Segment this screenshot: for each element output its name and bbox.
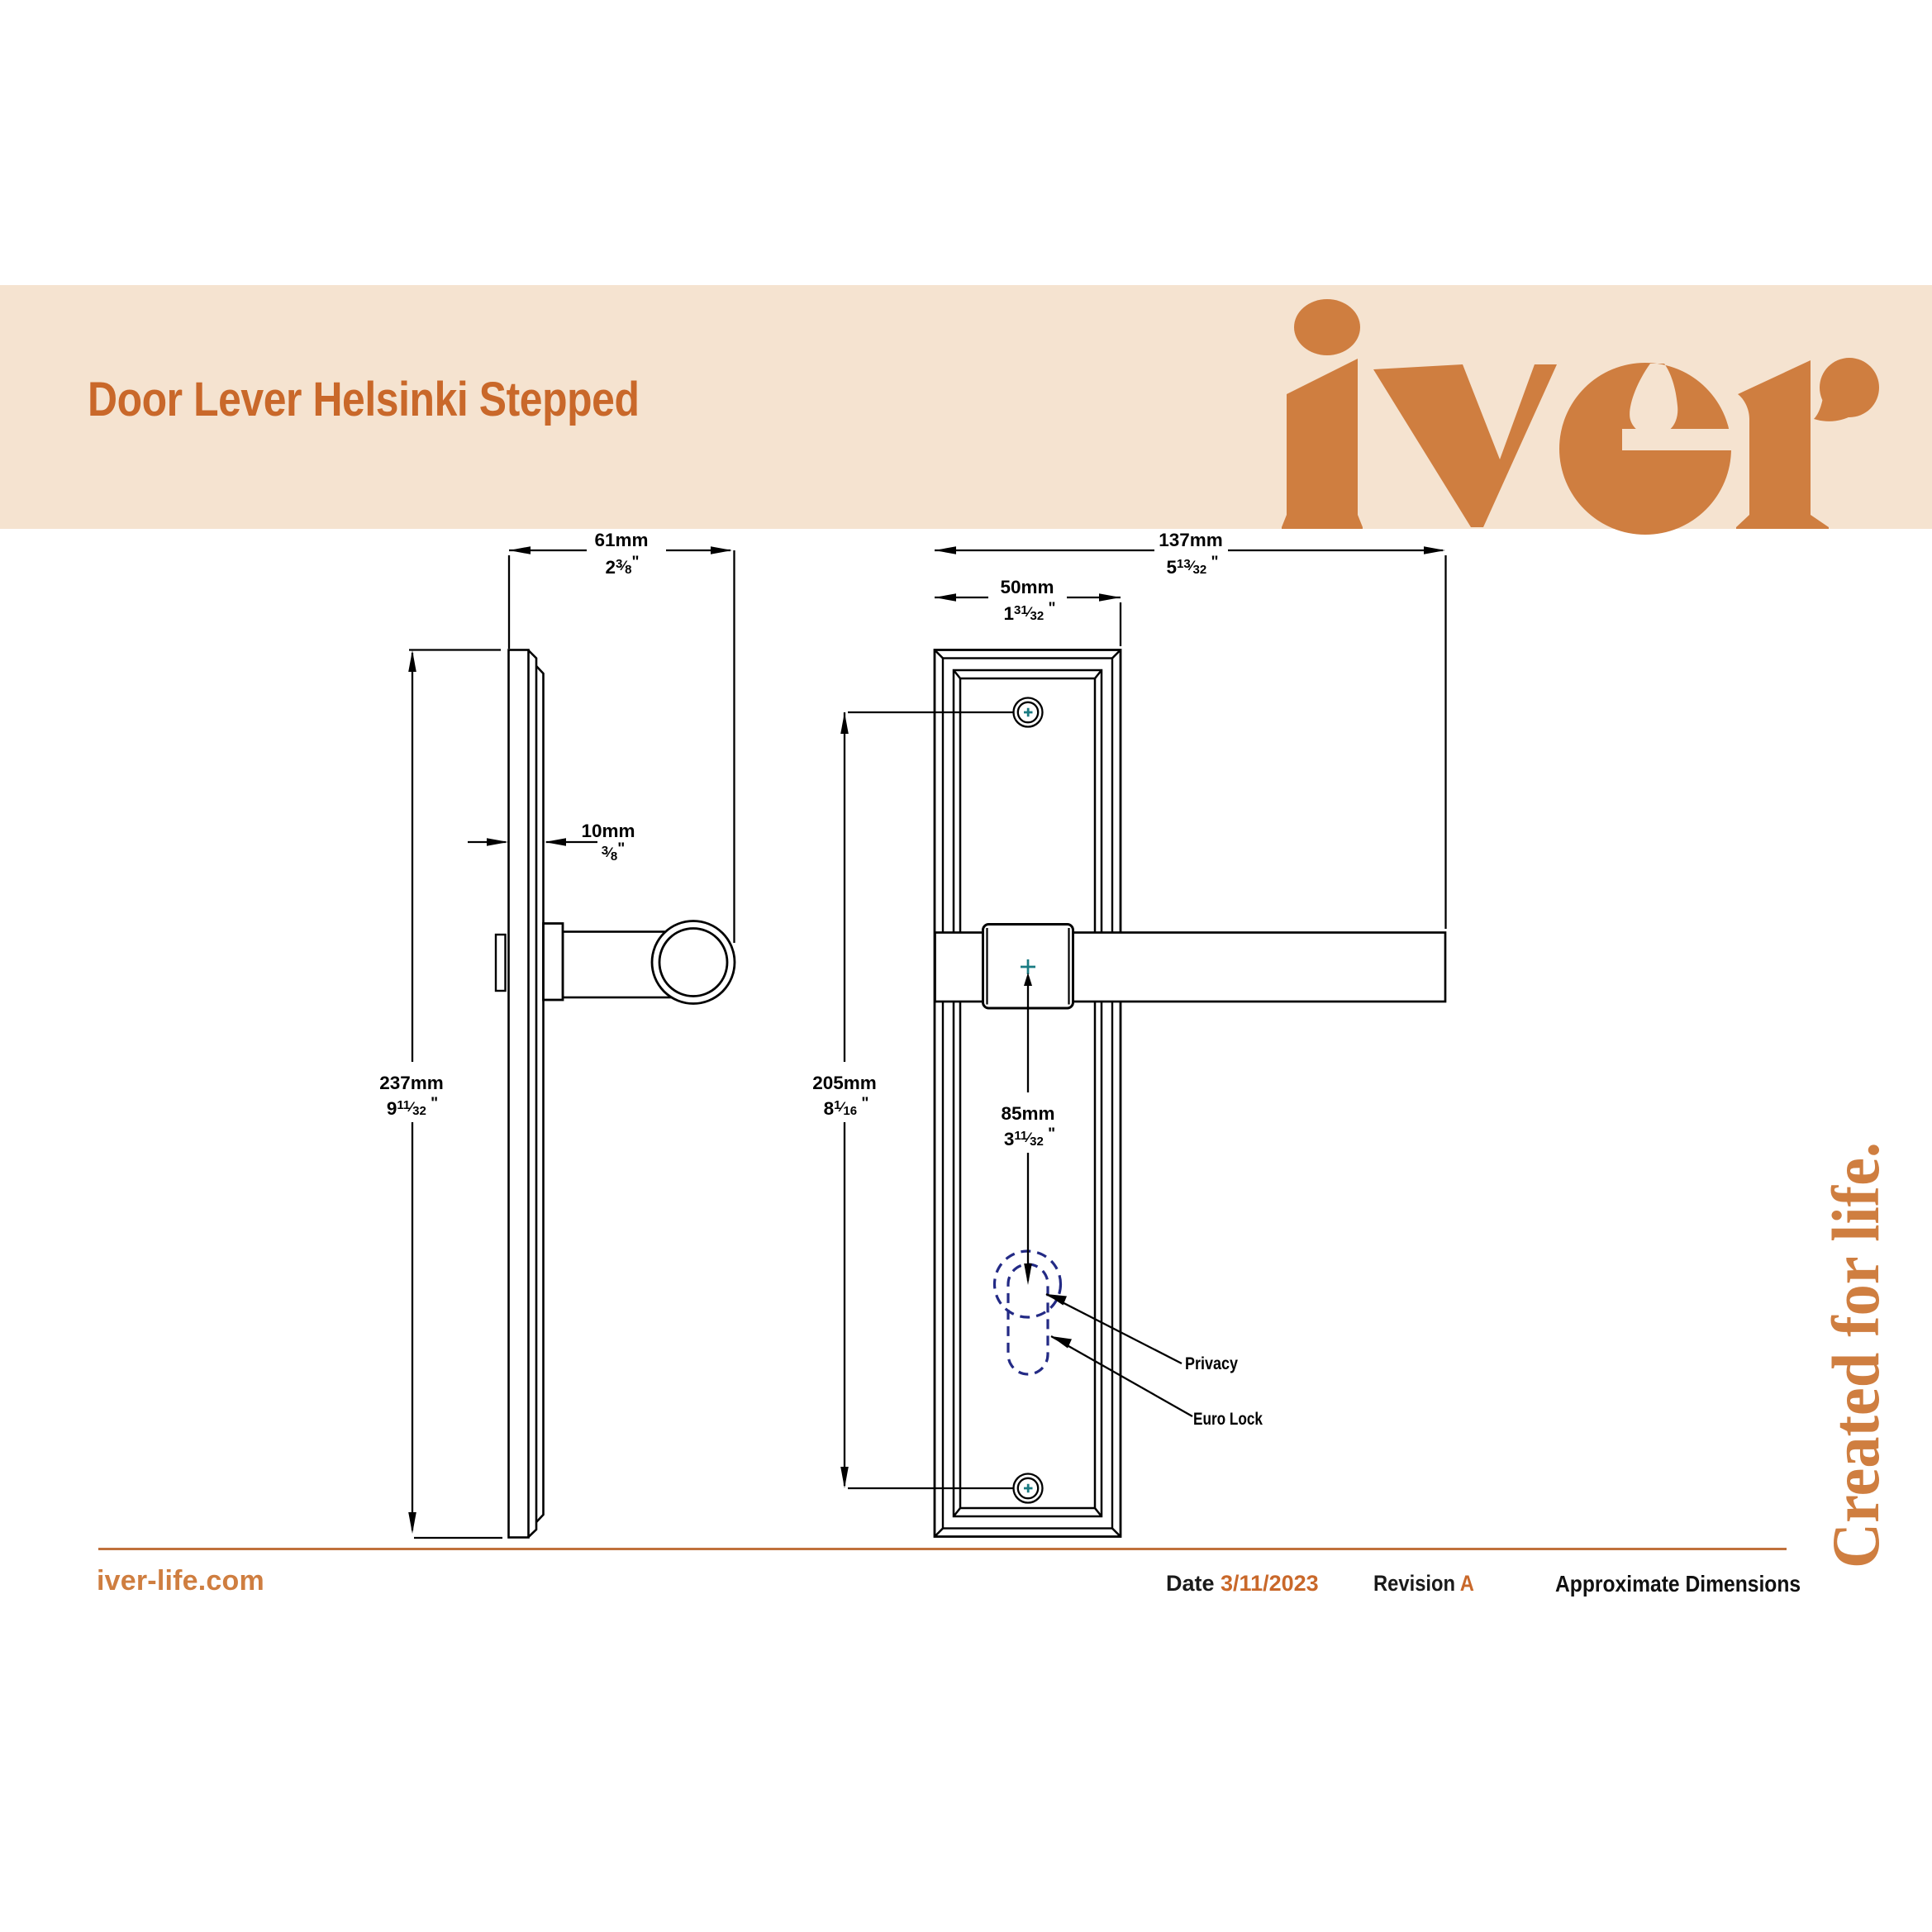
svg-text:10mm: 10mm — [581, 821, 635, 841]
svg-text:50mm: 50mm — [1000, 577, 1054, 597]
svg-text:Euro Lock: Euro Lock — [1193, 1409, 1263, 1429]
svg-text:85mm: 85mm — [1001, 1103, 1054, 1124]
svg-text:131⁄32 ": 131⁄32 " — [1003, 600, 1055, 624]
svg-text:911⁄32 ": 911⁄32 " — [387, 1095, 438, 1119]
svg-text:Privacy: Privacy — [1185, 1354, 1238, 1373]
svg-text:3⁄8": 3⁄8" — [602, 840, 626, 864]
svg-text:61mm: 61mm — [594, 530, 648, 550]
svg-text:137mm: 137mm — [1159, 530, 1223, 550]
svg-text:513⁄32 ": 513⁄32 " — [1166, 554, 1218, 578]
svg-text:81⁄16 ": 81⁄16 " — [824, 1095, 869, 1119]
svg-text:205mm: 205mm — [812, 1073, 877, 1093]
svg-text:23⁄8": 23⁄8" — [605, 554, 639, 578]
svg-text:237mm: 237mm — [379, 1073, 444, 1093]
